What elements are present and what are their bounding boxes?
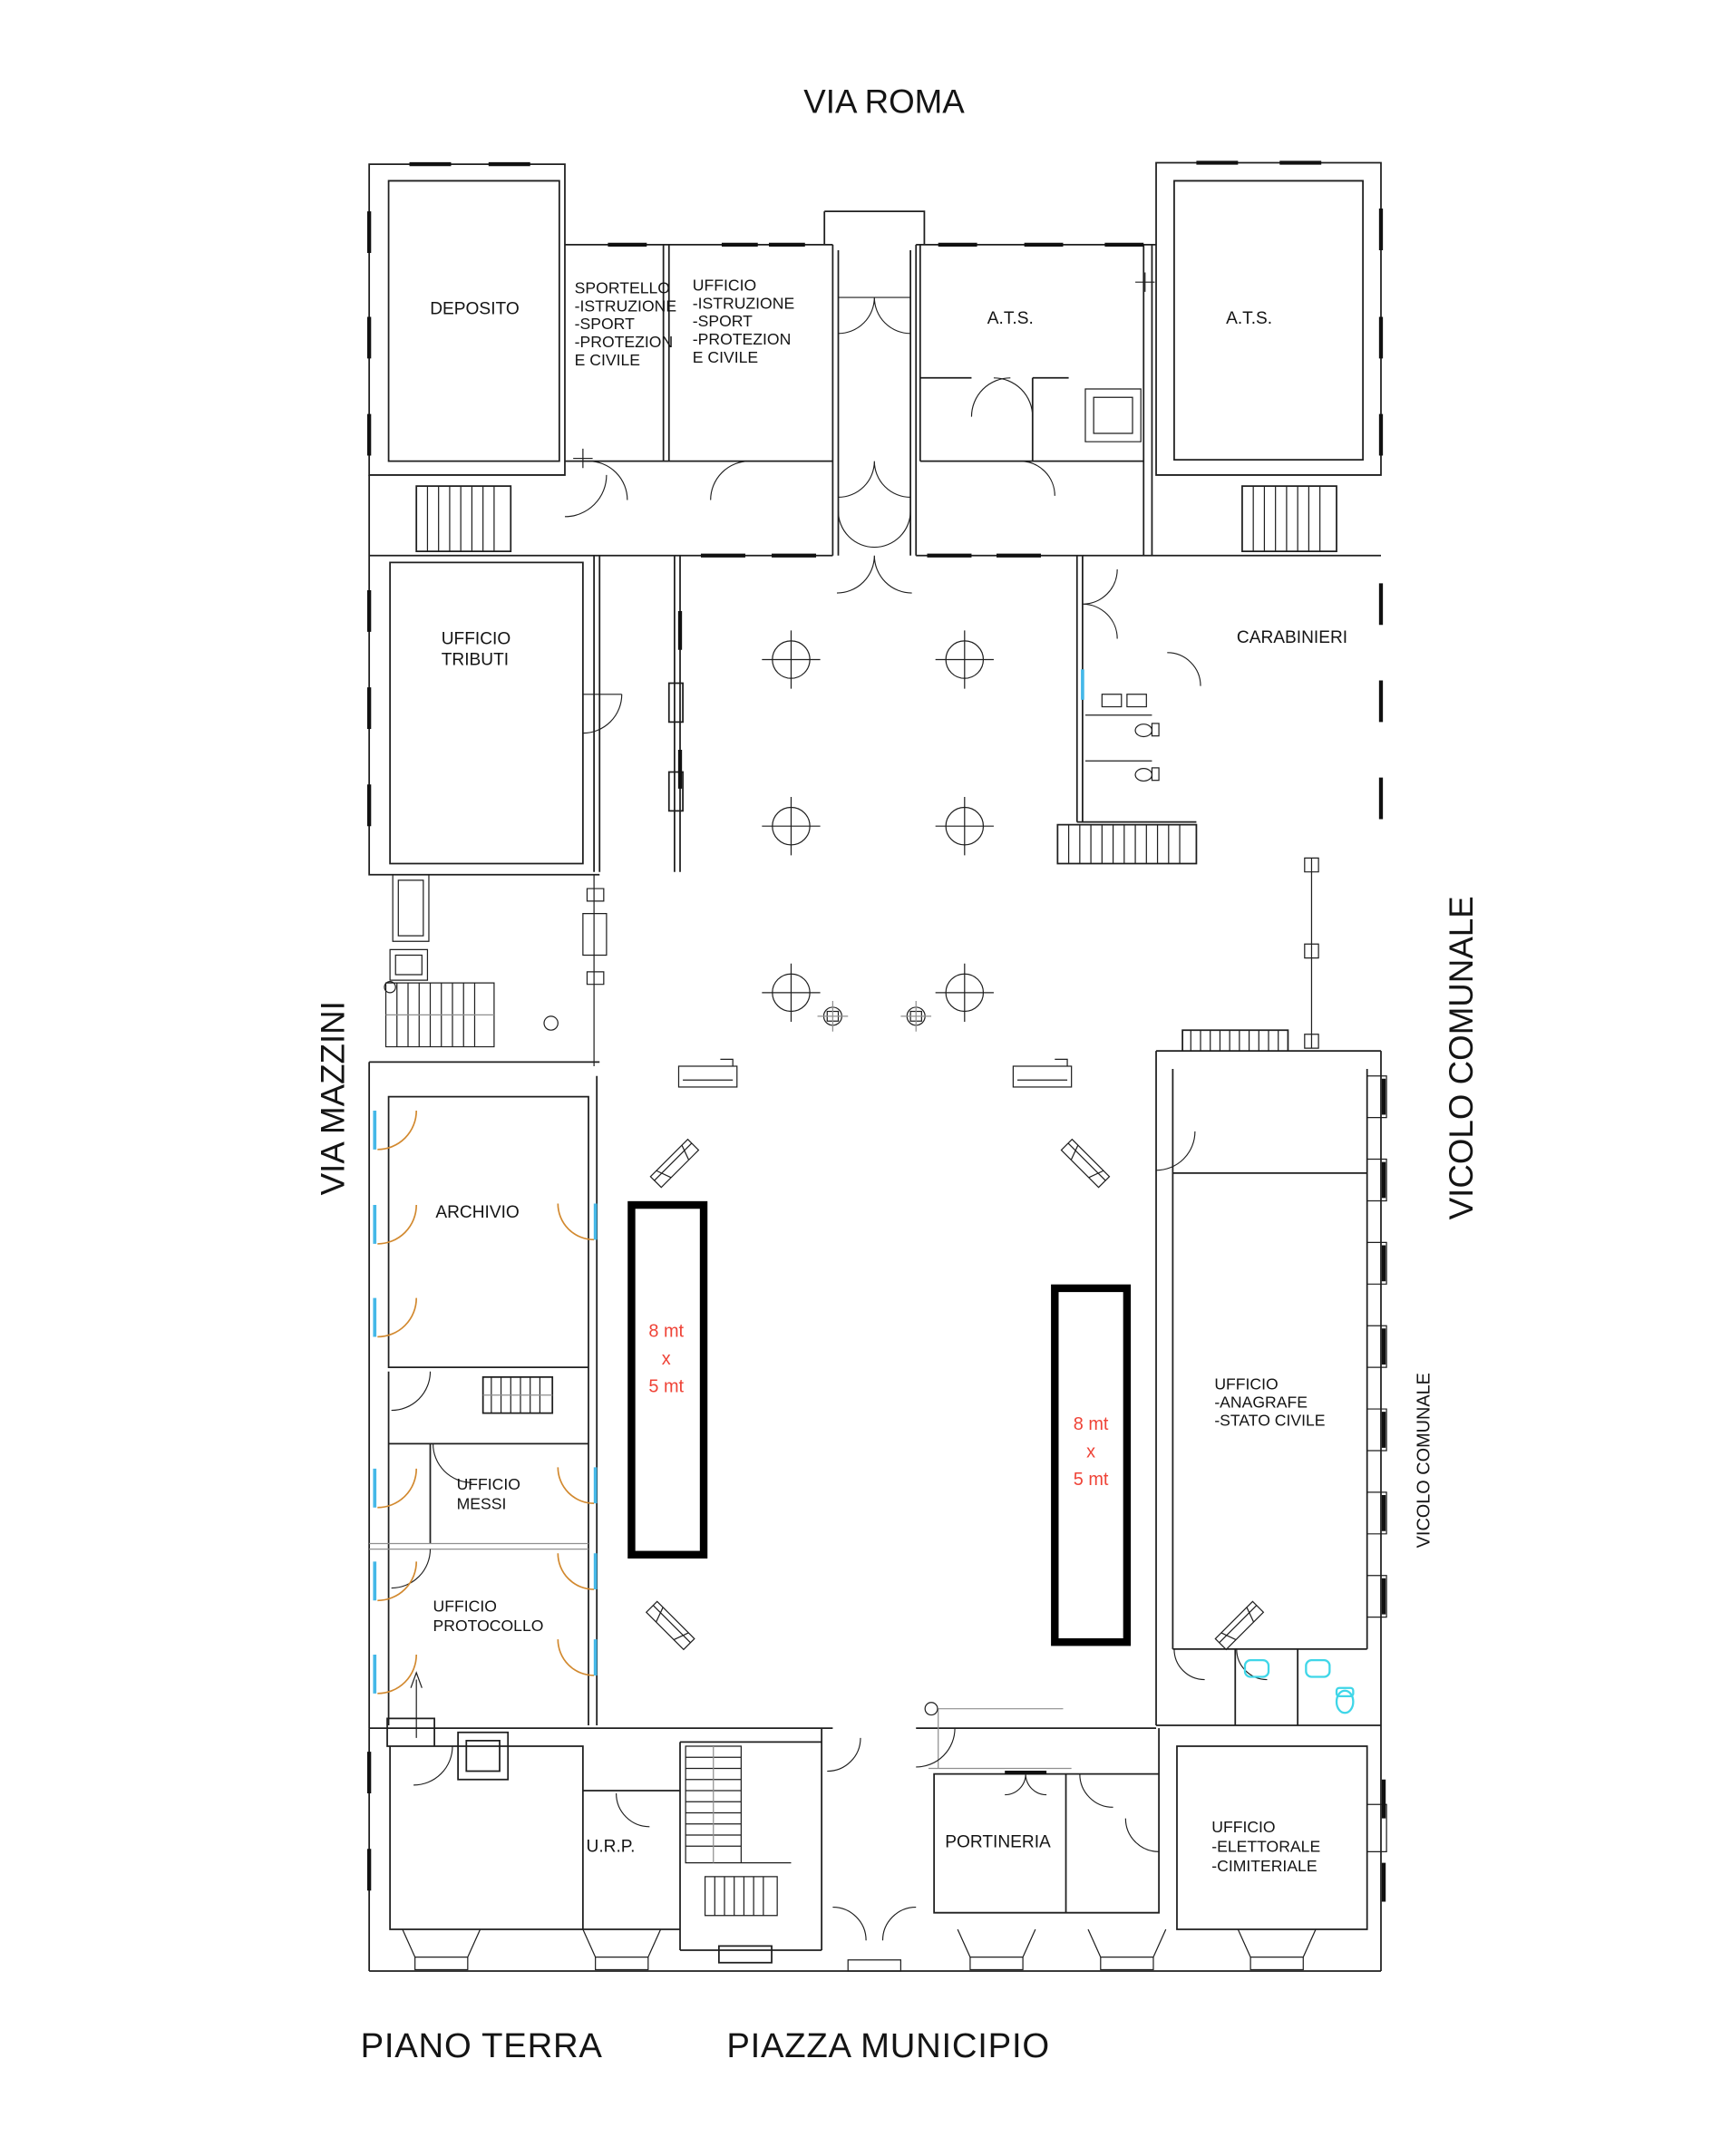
column-icon: [762, 630, 820, 688]
stair-treads-courtyard-east: [1069, 825, 1180, 864]
sign-panel-icon: [1215, 1601, 1263, 1649]
street-label-via-mazzini: VIA MAZZINI: [315, 1001, 352, 1195]
bollard-icon: [900, 1001, 931, 1032]
room-label-ats-west: A.T.S.: [987, 309, 1034, 328]
toilet-tank-icon: [1152, 724, 1159, 736]
room-label-sportello-3: -SPORT: [575, 315, 635, 333]
wall-lines-top-middle: [565, 211, 1156, 556]
footer-labels: PIANO TERRA PIAZZA MUNICIPIO: [361, 2026, 1050, 2065]
stair-flights-bottom: [685, 1746, 791, 1916]
door-swing-icons-black: [392, 297, 1268, 1940]
zone-west-dim-line3: 5 mt: [648, 1377, 684, 1397]
room-label-sportello-2: -ISTRUZIONE: [575, 296, 676, 315]
room-label-istruzione-4: -PROTEZION: [693, 330, 792, 348]
room-label-istruzione-3: -SPORT: [693, 312, 753, 330]
room-label-sportello-4: -PROTEZION: [575, 333, 674, 351]
bench-icon: [1013, 1059, 1071, 1087]
room-label-protocollo-2: PROTOCOLLO: [433, 1617, 544, 1635]
canopy-lines-portineria: [938, 1709, 1064, 1769]
floor-plan-drawing: VIA ROMA VIA MAZZINI VICOLO COMUNALE VIC…: [0, 0, 1721, 2156]
sign-panel-icon: [647, 1601, 695, 1649]
zone-east-dim-line2: x: [1086, 1442, 1095, 1462]
canopy-post: [925, 1703, 938, 1715]
room-label-protocollo-1: UFFICIO: [433, 1598, 497, 1616]
room-label-urp: U.R.P.: [587, 1837, 636, 1856]
street-label-vicolo-comunale-small: VICOLO COMUNALE: [1415, 1373, 1434, 1548]
wall-lines-courtyard: [675, 556, 1197, 864]
window-glazing-icons-blue: [374, 669, 1083, 1694]
footer-floor-label: PIANO TERRA: [361, 2026, 603, 2065]
room-labels: DEPOSITO SPORTELLO -ISTRUZIONE -SPORT -P…: [430, 276, 1347, 1874]
sink-icon: [1306, 1660, 1329, 1676]
bollard-icon: [818, 1001, 849, 1032]
room-label-ats-east: A.T.S.: [1226, 309, 1272, 328]
planter-boxes: [390, 875, 429, 980]
sign-panel-icon: [1061, 1140, 1109, 1188]
column-icon: [762, 797, 820, 855]
street-label-via-roma: VIA ROMA: [803, 83, 965, 120]
room-label-anagrafe-3: -STATO CIVILE: [1214, 1411, 1325, 1429]
toilet-icon: [1135, 769, 1152, 782]
elevator-shaft-ats: [1085, 389, 1141, 442]
zone-east-dim-line1: 8 mt: [1074, 1414, 1109, 1434]
room-label-anagrafe-1: UFFICIO: [1214, 1375, 1278, 1394]
room-label-elettorale-2: -ELETTORALE: [1211, 1837, 1320, 1855]
bench-icon: [678, 1059, 736, 1087]
room-label-messi-1: UFFICIO: [457, 1475, 520, 1493]
room-label-sportello-1: SPORTELLO: [575, 278, 670, 296]
stair-treads-right-wing-top: [1191, 1030, 1278, 1051]
column-icon: [936, 797, 994, 855]
toilet-tank-icon: [1152, 768, 1159, 781]
zone-east-dim-line3: 5 mt: [1074, 1470, 1109, 1490]
zone-west-dim-line2: x: [662, 1349, 671, 1369]
sink-icon: [1245, 1660, 1269, 1676]
room-label-tributi-2: TRIBUTI: [442, 651, 509, 670]
window-icons-black: [369, 163, 1384, 1902]
column-icon: [762, 964, 820, 1022]
column-icon: [936, 964, 994, 1022]
bathroom-fixtures: [1135, 724, 1353, 1713]
room-label-anagrafe-2: -ANAGRAFE: [1214, 1394, 1308, 1412]
room-label-archivio: ARCHIVIO: [435, 1203, 519, 1222]
zone-west-dim-line1: 8 mt: [648, 1321, 684, 1341]
wall-lines-corridor-row: [369, 486, 1381, 556]
room-label-elettorale-1: UFFICIO: [1211, 1818, 1275, 1836]
footer-square-label: PIAZZA MUNICIPIO: [726, 2026, 1050, 2065]
toilet-icon: [1337, 1691, 1353, 1713]
gray-partition-messi-protocollo: [369, 1395, 588, 1549]
room-label-portineria: PORTINERIA: [945, 1833, 1051, 1852]
room-label-messi-2: MESSI: [457, 1494, 507, 1512]
room-label-tributi-1: UFFICIO: [442, 630, 510, 649]
zone-rect-east: [1055, 1288, 1127, 1642]
room-label-carabinieri: CARABINIERI: [1237, 628, 1347, 647]
street-label-vicolo-comunale: VICOLO COMUNALE: [1443, 896, 1480, 1219]
window-bays-bottom-wall: [403, 1929, 1316, 1971]
room-label-istruzione-5: E CIVILE: [693, 348, 758, 366]
fence-lines-courtyard: [583, 858, 1318, 1066]
room-label-istruzione-1: UFFICIO: [693, 276, 756, 294]
column-icon: [936, 630, 994, 688]
room-label-deposito: DEPOSITO: [430, 299, 519, 318]
stair-treads-top: [427, 486, 1319, 551]
room-label-elettorale-3: -CIMITERIALE: [1211, 1857, 1317, 1875]
room-label-sportello-5: E CIVILE: [575, 351, 640, 369]
room-label-istruzione-2: -ISTRUZIONE: [693, 294, 794, 312]
sign-panel-icon: [650, 1140, 698, 1188]
small-post-icon: [544, 1016, 558, 1030]
floor-plan-page: VIA ROMA VIA MAZZINI VICOLO COMUNALE VIC…: [0, 0, 1721, 2156]
bathroom-partitions: [1085, 694, 1152, 761]
building-walls: [369, 163, 1386, 1971]
market-zones: 8 mt x 5 mt 8 mt x 5 mt: [631, 1205, 1126, 1642]
wall-lines-deposito-block: [369, 164, 565, 475]
toilet-icon: [1135, 724, 1152, 737]
